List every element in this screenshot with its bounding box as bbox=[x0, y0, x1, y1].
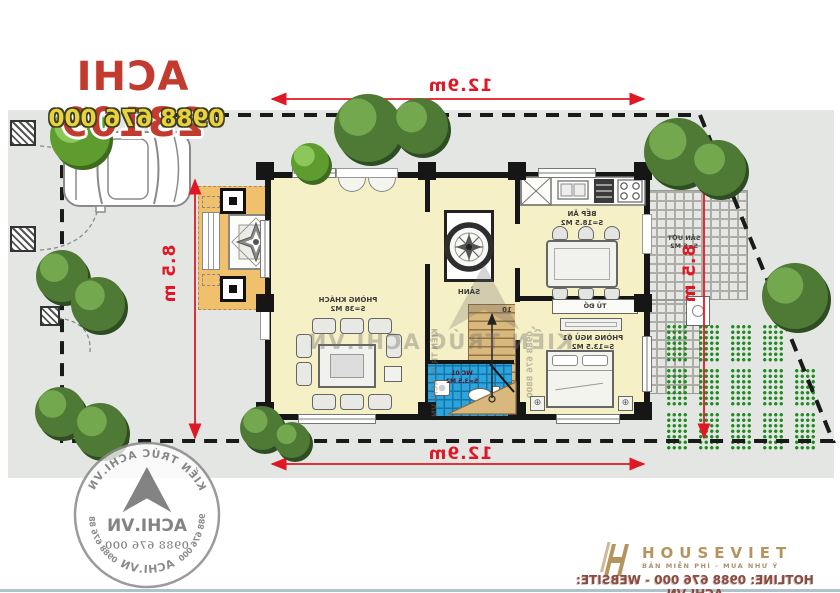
window-kitchen-top bbox=[538, 168, 596, 178]
door-living-hall bbox=[425, 212, 430, 264]
garden-bed bbox=[794, 368, 816, 406]
dining-table bbox=[546, 240, 618, 288]
dining-chair bbox=[552, 226, 568, 240]
window-bedroom-bottom bbox=[556, 414, 620, 424]
wall-pillar bbox=[418, 162, 436, 180]
sofa-seat bbox=[368, 394, 392, 410]
room-label-hall: SẢNH bbox=[444, 288, 494, 297]
window-living-left bbox=[260, 220, 270, 278]
watermark-triangle-logo bbox=[446, 264, 522, 330]
wall-pillar bbox=[256, 294, 274, 312]
wall-pillar bbox=[634, 162, 652, 180]
watermark-vertical: KIẾN TRÚC ACHI.VN bbox=[431, 328, 440, 418]
dining-chair bbox=[604, 226, 620, 240]
garden-bed bbox=[794, 412, 816, 450]
bed bbox=[546, 350, 614, 408]
stamp-center-name: ACHI.VN bbox=[107, 516, 187, 536]
garden-bed bbox=[666, 368, 688, 406]
label-wardrobe: TỦ ĐỒ bbox=[552, 302, 638, 310]
porch-step-dash-bottom bbox=[202, 274, 220, 286]
stair-step-count: 10 bbox=[498, 306, 516, 315]
houseviet-brand: HOUSEVIET bbox=[642, 544, 792, 562]
dimension-left: 8.5 m bbox=[160, 244, 180, 304]
room-label-bedroom: PHÒNG NGỦ 01S=13.5 M2 bbox=[550, 334, 636, 352]
entrance-opening bbox=[336, 168, 398, 178]
wall-pillar bbox=[256, 162, 274, 180]
dimension-bottom: 12.9m bbox=[380, 444, 540, 464]
window-living-top bbox=[292, 168, 336, 178]
floor-plan-page: ⊕ ⊕ bbox=[0, 0, 840, 593]
wall-pillar bbox=[508, 162, 526, 180]
header-phone: 0988 676 000 bbox=[44, 106, 229, 132]
wc-toilet-bowl bbox=[468, 388, 492, 402]
garden-bed bbox=[666, 412, 688, 450]
dimension-right: 8.5 m bbox=[680, 244, 700, 304]
nightstand: ⊕ bbox=[618, 396, 633, 411]
wc-toilet-tank bbox=[492, 386, 500, 404]
garden-bed bbox=[730, 412, 752, 450]
sofa-seat bbox=[340, 394, 364, 410]
porch-steps bbox=[202, 212, 220, 270]
wall-pillar bbox=[634, 402, 652, 420]
pillow bbox=[582, 355, 608, 366]
sofa-seat bbox=[312, 394, 336, 410]
plan-code-title: ACHI 23109 bbox=[6, 54, 258, 146]
side-gate-post bbox=[40, 306, 60, 326]
kitchen-counter bbox=[520, 176, 646, 206]
wall-pillar bbox=[508, 402, 526, 420]
garden-bed bbox=[730, 324, 752, 362]
garden-bed bbox=[762, 412, 784, 450]
watermark-brand-text: KIẾN TRÚC ACHI.VN bbox=[300, 330, 580, 354]
room-label-living: PHÒNG KHÁCHS=38 M2 bbox=[298, 296, 398, 314]
porch-step-dash-top bbox=[202, 196, 220, 208]
houseviet-tagline: BẢN MIỄN PHÍ - MUA NHƯ Ý bbox=[642, 562, 792, 570]
window-living-bottom bbox=[298, 414, 376, 424]
door-hall-kitchen bbox=[515, 224, 520, 268]
wall-pillar bbox=[256, 402, 274, 420]
kitchen-side-door bbox=[642, 214, 652, 254]
garden-bed bbox=[698, 324, 720, 362]
garden-bed bbox=[730, 368, 752, 406]
garden-bed bbox=[762, 324, 784, 362]
stamp-center-phone: 0988 676 000 bbox=[105, 539, 190, 552]
porch-ornament-top bbox=[220, 188, 246, 214]
dimension-top: 12.9m bbox=[380, 76, 540, 96]
footer-hotline: HOTLINE: 0988 676 000 - WEBSITE: ACHI.VN bbox=[552, 573, 838, 593]
watermark-vertical-phone: 0988 676 8800 bbox=[526, 320, 535, 410]
room-label-kitchen: BẾP ĂNS=18.5 M2 bbox=[542, 210, 622, 228]
garden-bed bbox=[698, 412, 720, 450]
sofa-seat bbox=[296, 362, 312, 386]
garden-bed bbox=[762, 368, 784, 406]
gate-post bbox=[10, 226, 36, 252]
room-label-wc: WC 01S=3.5 M2 bbox=[442, 370, 482, 385]
garden-bed bbox=[666, 324, 688, 362]
pillow bbox=[552, 355, 578, 366]
achi-stamp: KIẾN TRÚC ACHI.VN 0988 676 000 ACHI.VN 0… bbox=[70, 438, 224, 593]
garden-bed bbox=[698, 368, 720, 406]
porch-ornament-bottom bbox=[220, 276, 246, 302]
dining-chair bbox=[578, 226, 594, 240]
side-table bbox=[384, 366, 402, 382]
window-bedroom-right bbox=[642, 336, 652, 392]
